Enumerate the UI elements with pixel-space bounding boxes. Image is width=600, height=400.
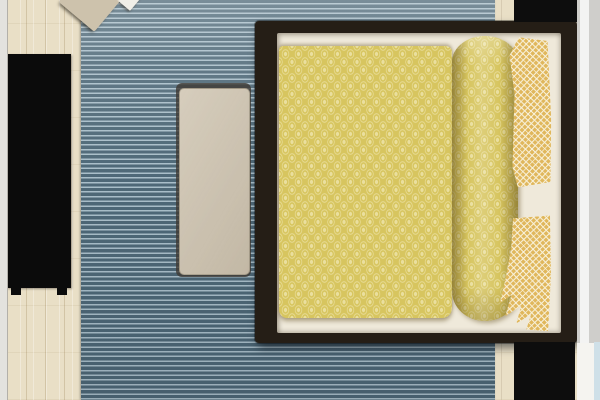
- bench[interactable]: [179, 88, 250, 275]
- wall-left: [0, 0, 8, 400]
- wall-right-highlight: [580, 0, 589, 400]
- nightstand-bottom[interactable]: [514, 342, 575, 400]
- nightstand-top[interactable]: [514, 0, 577, 22]
- wardrobe-foot-right: [57, 288, 67, 295]
- wall-right-lower: [577, 343, 595, 400]
- duvet: [279, 46, 452, 318]
- wardrobe-foot-left: [11, 288, 21, 295]
- bed[interactable]: [255, 21, 577, 343]
- room-plan: [0, 0, 600, 400]
- pillow-top: [509, 37, 553, 188]
- wardrobe[interactable]: [7, 54, 71, 288]
- window-sliver: [594, 342, 600, 400]
- wall-right: [577, 0, 600, 400]
